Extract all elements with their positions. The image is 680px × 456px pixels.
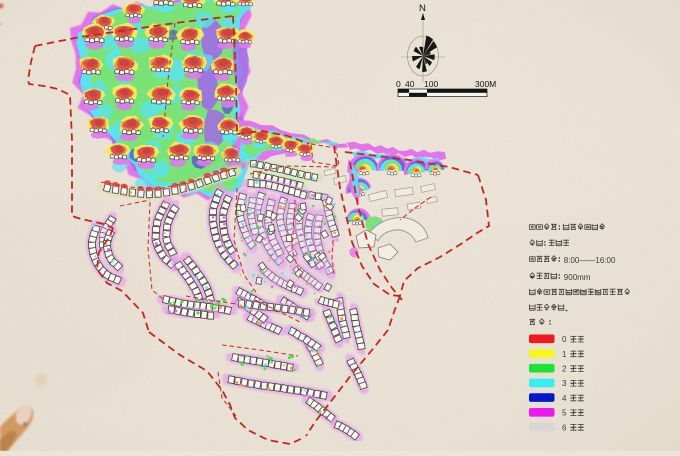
svg-text:0: 0: [562, 335, 567, 344]
svg-text:1: 1: [562, 350, 567, 359]
svg-text:900mm: 900mm: [564, 273, 591, 282]
svg-text:300M: 300M: [475, 79, 496, 89]
svg-text:40: 40: [405, 79, 415, 89]
svg-text:4: 4: [562, 394, 567, 403]
svg-text:6: 6: [562, 423, 567, 432]
svg-text:5: 5: [562, 409, 567, 418]
svg-text:3: 3: [562, 379, 567, 388]
svg-text:8:00——16:00: 8:00——16:00: [564, 256, 616, 265]
svg-text:100: 100: [424, 79, 438, 89]
svg-text:0: 0: [396, 79, 401, 89]
svg-text:N: N: [419, 3, 426, 14]
svg-text:2: 2: [562, 365, 567, 374]
